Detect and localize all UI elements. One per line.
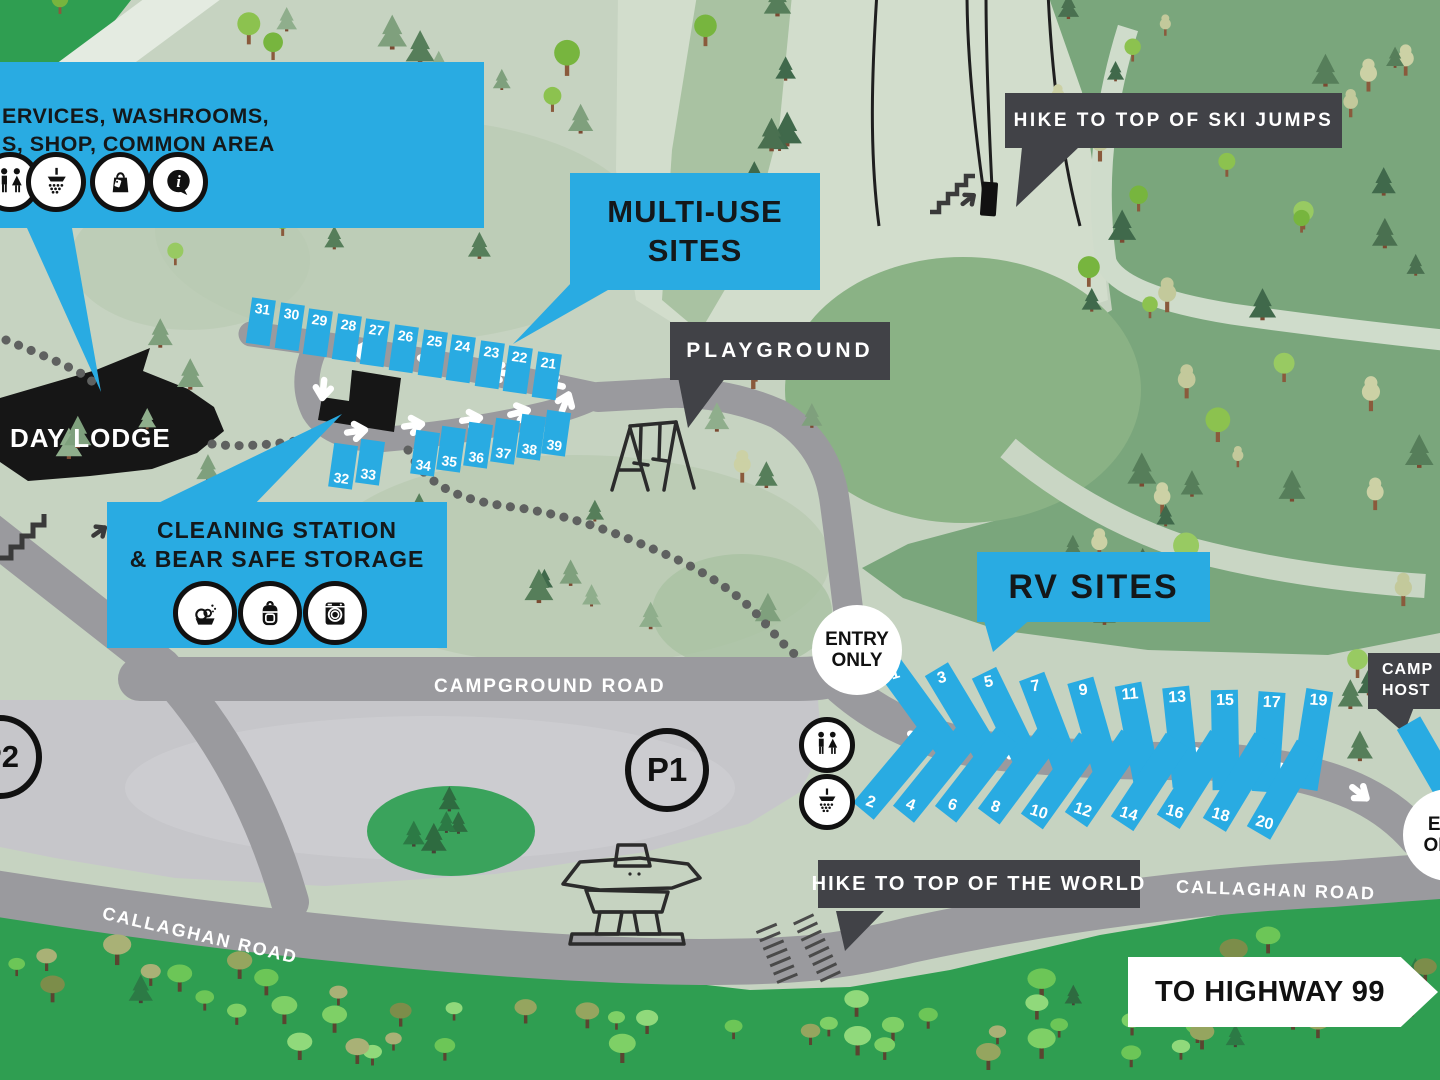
camp-host-line1: CAMP xyxy=(1382,660,1433,681)
highway-sign: TO HIGHWAY 99 xyxy=(1128,957,1438,1027)
multi-use-site-28-label: 28 xyxy=(339,314,357,336)
top-of-world-label: HIKE TO TOP OF THE WORLD xyxy=(812,873,1147,896)
laundry-icon xyxy=(303,581,367,645)
shop-icon xyxy=(90,152,150,212)
multi-use-line1: MULTI-USE xyxy=(607,193,782,232)
rv-sites-callout: RV SITES xyxy=(977,552,1210,622)
multi-use-site-24: 24 xyxy=(446,335,476,384)
multi-use-site-23-label: 23 xyxy=(482,341,500,363)
multi-use-site-37: 37 xyxy=(490,418,520,465)
multi-use-site-39: 39 xyxy=(541,410,571,457)
rv-site-2-label: 2 xyxy=(862,791,878,815)
campground-road-label: CAMPGROUND ROAD xyxy=(434,676,666,698)
multi-use-site-27: 27 xyxy=(360,319,390,368)
info-icon: i xyxy=(148,152,208,212)
shower-icon xyxy=(26,152,86,212)
washrooms-icon xyxy=(799,717,855,773)
rv-sites-label: RV SITES xyxy=(1008,568,1178,607)
multi-use-site-33: 33 xyxy=(355,439,385,486)
multi-use-site-36-label: 36 xyxy=(467,446,485,468)
rv-site-5-label: 5 xyxy=(982,671,995,694)
day-lodge-label: DAY LODGE xyxy=(10,423,171,454)
rv-site-10-label: 10 xyxy=(1026,799,1050,825)
multi-use-site-23: 23 xyxy=(475,340,505,389)
entry-only-marker: ENTRY ONLY xyxy=(812,605,902,695)
multi-use-site-22: 22 xyxy=(503,345,533,394)
multi-use-site-34: 34 xyxy=(410,430,440,477)
multi-use-site-37-label: 37 xyxy=(494,442,512,464)
rv-site-18-label: 18 xyxy=(1208,802,1231,828)
multi-use-site-26-label: 26 xyxy=(396,325,414,347)
svg-text:i: i xyxy=(176,171,181,190)
ski-jumps-callout: HIKE TO TOP OF SKI JUMPS xyxy=(1005,93,1342,148)
campground-map: 3130292827262524232221323334353637383913… xyxy=(0,0,1440,1080)
camp-host-callout: CAMP HOST xyxy=(1368,653,1440,709)
multi-use-site-25-label: 25 xyxy=(425,330,443,352)
rv-site-13-label: 13 xyxy=(1168,687,1187,710)
multi-use-site-27-label: 27 xyxy=(368,319,386,341)
multi-use-site-31: 31 xyxy=(246,297,276,346)
multi-use-site-34-label: 34 xyxy=(414,454,432,476)
playground-callout: PLAYGROUND xyxy=(670,322,890,380)
multi-use-site-30: 30 xyxy=(274,303,304,352)
multi-use-site-21-label: 21 xyxy=(539,351,557,373)
cleaning-line2: & BEAR SAFE STORAGE xyxy=(130,545,425,574)
multi-use-site-25: 25 xyxy=(417,329,447,378)
multi-use-site-39-label: 39 xyxy=(545,434,563,456)
multi-use-site-30-label: 30 xyxy=(282,303,300,325)
rv-site-12-label: 12 xyxy=(1070,797,1094,823)
rv-site-15-label: 15 xyxy=(1215,690,1233,712)
shower-icon xyxy=(799,774,855,830)
multi-use-callout: MULTI-USE SITES xyxy=(570,173,820,290)
exit-line1: EXIT xyxy=(1428,814,1440,835)
parking-2-label: P2 xyxy=(0,740,19,775)
parking-1-label: P1 xyxy=(647,752,687,789)
multi-use-site-33-label: 33 xyxy=(359,463,377,485)
rv-site-20-label: 20 xyxy=(1252,810,1275,836)
backpack-icon xyxy=(238,581,302,645)
multi-use-site-35-label: 35 xyxy=(440,450,458,472)
highway-sign-label: TO HIGHWAY 99 xyxy=(1155,976,1385,1009)
playground-label: PLAYGROUND xyxy=(686,339,873,363)
multi-use-site-32-label: 32 xyxy=(332,467,350,489)
cleaning-line1: CLEANING STATION xyxy=(157,516,397,545)
camp-host-line2: HOST xyxy=(1382,681,1430,702)
multi-use-site-36: 36 xyxy=(463,422,493,469)
multi-use-site-28: 28 xyxy=(332,313,362,362)
entry-line2: ONLY xyxy=(831,650,882,671)
ski-jumps-label: HIKE TO TOP OF SKI JUMPS xyxy=(1014,110,1334,132)
rv-site-16-label: 16 xyxy=(1162,799,1185,825)
multi-use-site-29-label: 29 xyxy=(311,309,329,331)
rv-site-9-label: 9 xyxy=(1077,679,1089,702)
top-of-world-callout: HIKE TO TOP OF THE WORLD xyxy=(818,860,1140,908)
multi-use-site-29: 29 xyxy=(303,308,333,357)
rv-site-19-label: 19 xyxy=(1309,689,1328,712)
rv-site-8-label: 8 xyxy=(987,796,1002,820)
multi-use-line2: SITES xyxy=(648,232,743,271)
parking-1-marker: P1 xyxy=(625,728,709,812)
multi-use-site-31-label: 31 xyxy=(253,298,271,320)
multi-use-site-22-label: 22 xyxy=(511,346,529,368)
rv-site-7-label: 7 xyxy=(1030,675,1042,698)
services-line1: ERVICES, WASHROOMS, xyxy=(2,103,275,131)
multi-use-site-32: 32 xyxy=(328,443,358,490)
rv-site-17-label: 17 xyxy=(1262,692,1280,715)
dishwashing-icon xyxy=(173,581,237,645)
rv-site-6-label: 6 xyxy=(944,794,960,818)
exit-line2: ONLY xyxy=(1423,835,1440,856)
rv-site-14-label: 14 xyxy=(1116,801,1139,827)
multi-use-site-35: 35 xyxy=(436,426,466,473)
multi-use-site-24-label: 24 xyxy=(454,335,472,357)
rv-site-11-label: 11 xyxy=(1121,683,1140,706)
multi-use-site-38-label: 38 xyxy=(520,438,538,460)
multi-use-site-26: 26 xyxy=(389,324,419,373)
rv-site-4-label: 4 xyxy=(902,794,918,818)
entry-line1: ENTRY xyxy=(825,629,889,650)
rv-site-3-label: 3 xyxy=(935,667,949,690)
multi-use-site-21: 21 xyxy=(532,351,562,400)
